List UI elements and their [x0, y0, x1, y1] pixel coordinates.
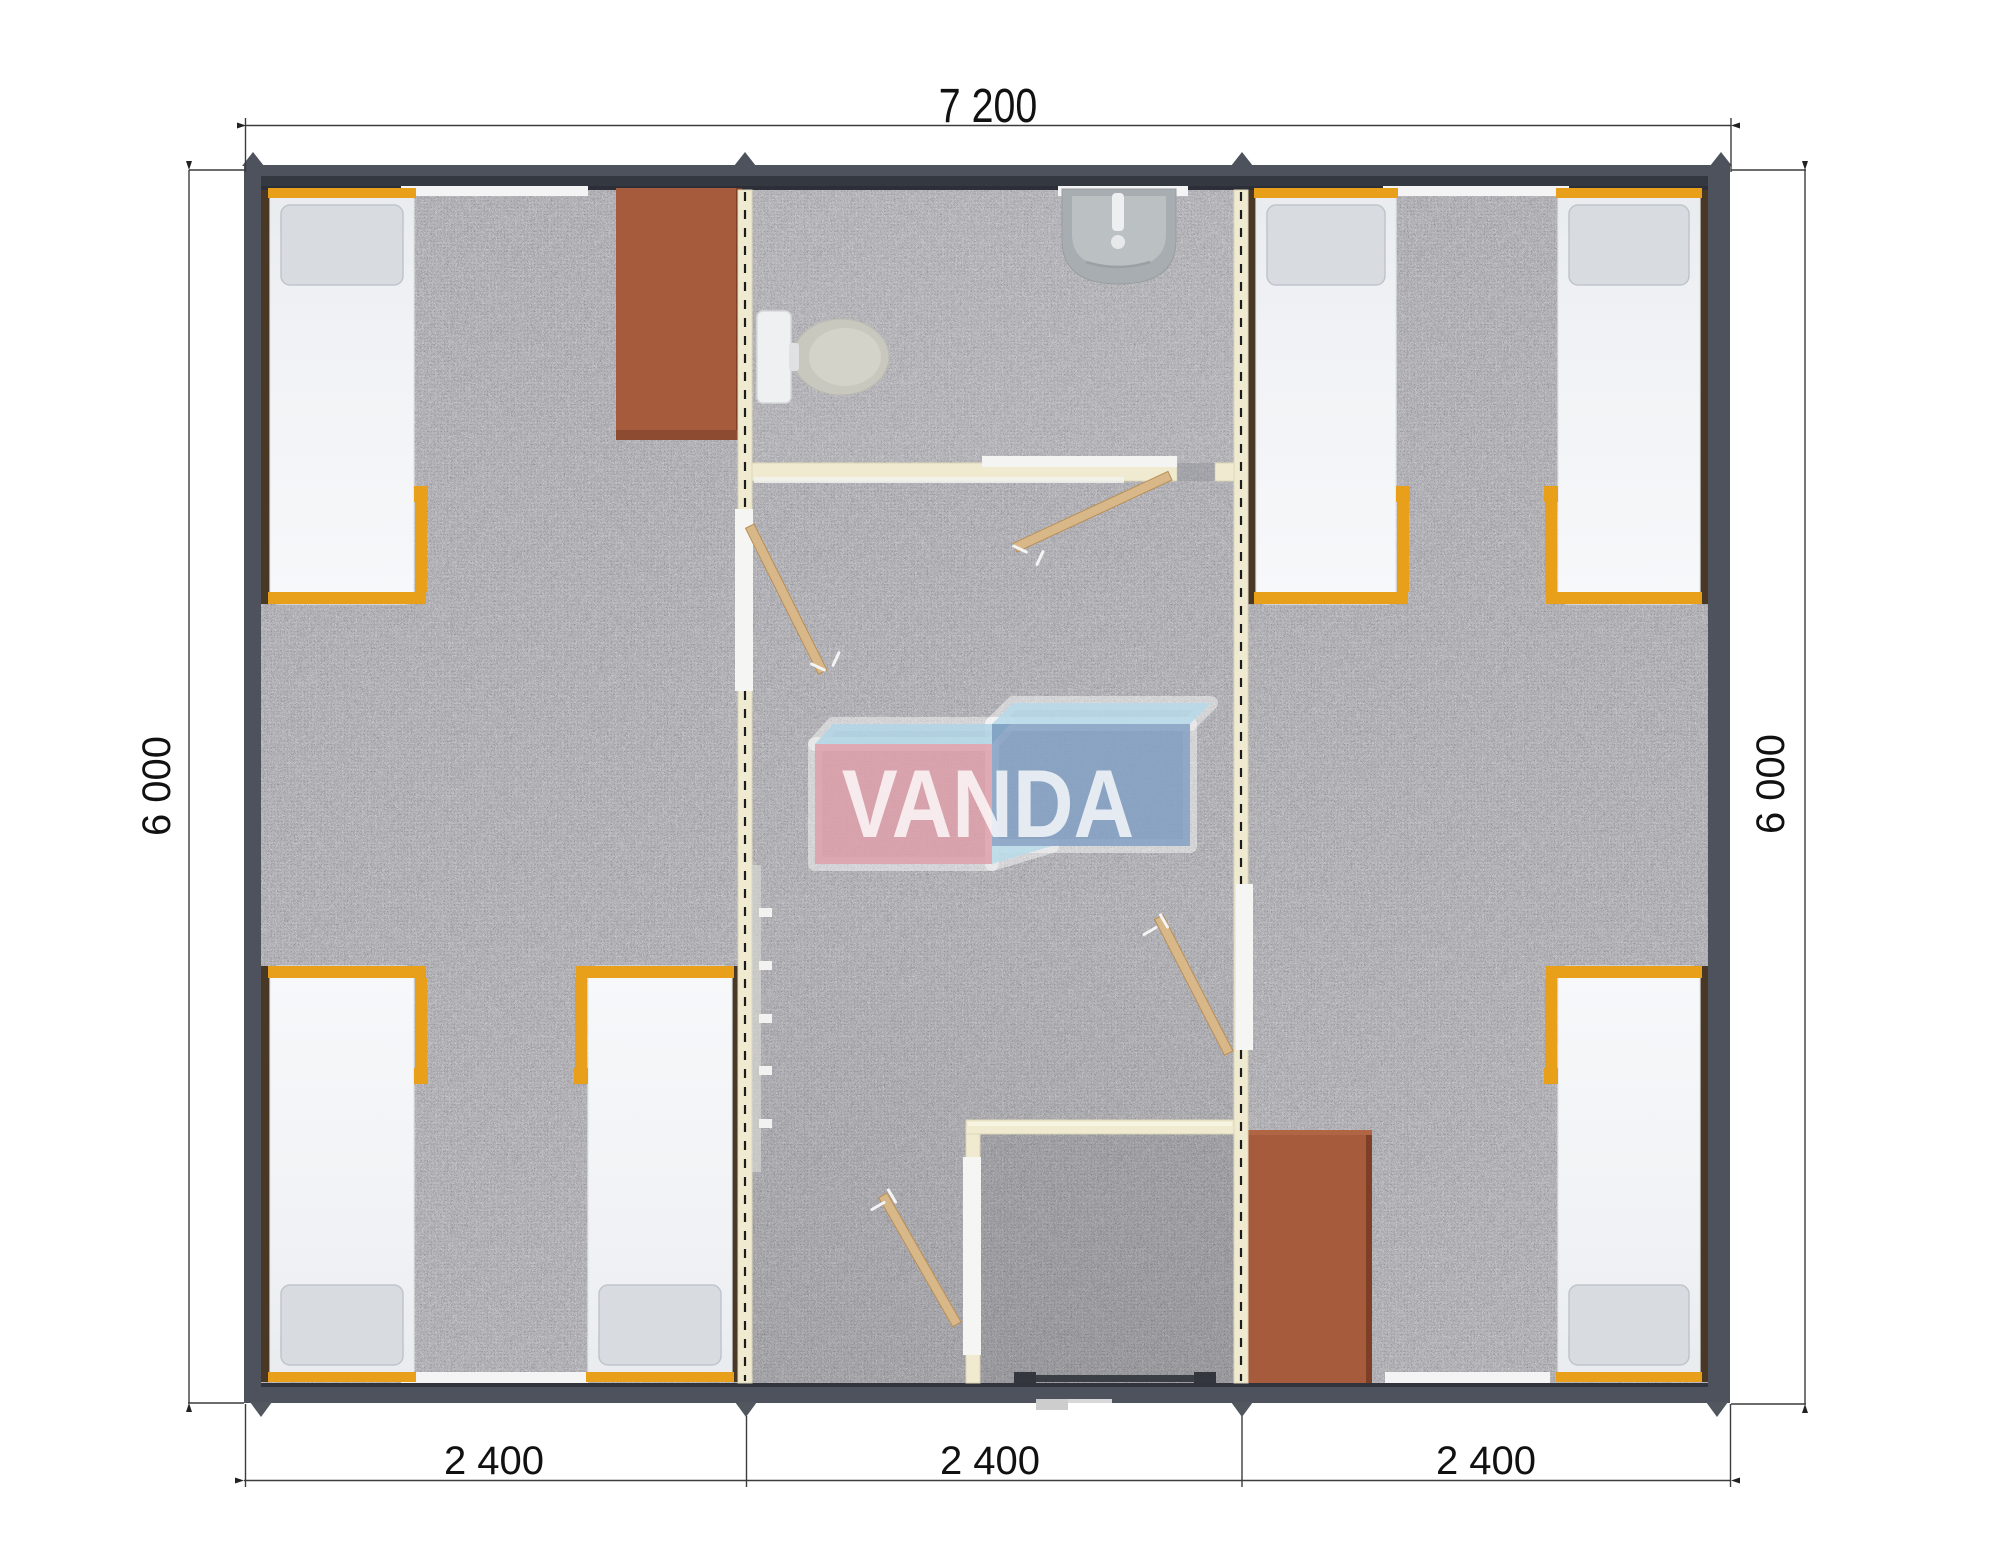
- svg-text:7 200: 7 200: [939, 79, 1037, 133]
- svg-text:6 000: 6 000: [135, 736, 179, 836]
- svg-text:VANDA: VANDA: [842, 750, 1134, 858]
- svg-text:2 400: 2 400: [1436, 1439, 1536, 1483]
- svg-text:2 400: 2 400: [444, 1439, 544, 1483]
- svg-text:6 000: 6 000: [1749, 734, 1793, 834]
- svg-text:2 400: 2 400: [940, 1439, 1040, 1483]
